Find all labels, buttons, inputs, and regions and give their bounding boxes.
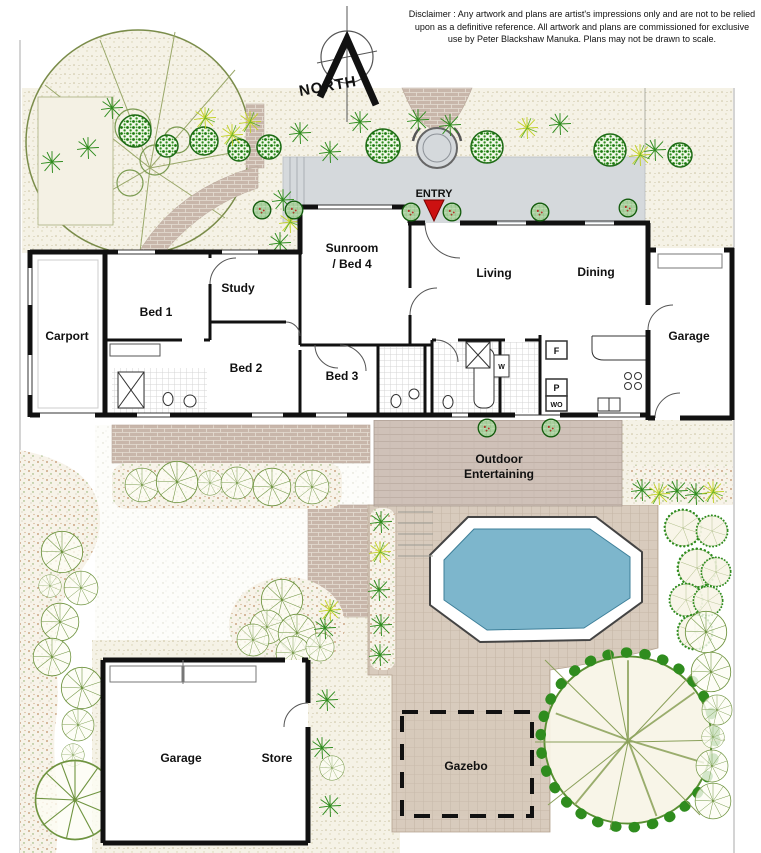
plan-drawing: NORTH: [0, 0, 761, 853]
label-wall-oven: WO: [550, 402, 563, 409]
pool-water: [444, 529, 630, 630]
label-outdoor-1: Outdoor: [475, 452, 523, 466]
room-label-bed1: Bed 1: [140, 305, 173, 319]
garage-door-panel: [184, 666, 256, 682]
disclaimer-text: Disclaimer : Any artwork and plans are a…: [408, 8, 756, 46]
garage-door-panel: [110, 666, 182, 682]
label-pantry: P: [553, 383, 559, 393]
driveway-gravel: [645, 88, 733, 266]
room-label-bed3: Bed 3: [326, 369, 359, 383]
label-outdoor-2: Entertaining: [464, 467, 534, 481]
brick-path-rear: [112, 425, 370, 463]
room-label-sunroom-1: Sunroom: [326, 241, 379, 255]
toilet: [391, 395, 401, 408]
room-label-dining: Dining: [577, 265, 614, 279]
label-gazebo: Gazebo: [444, 759, 487, 773]
basin: [409, 389, 419, 399]
toilet: [163, 393, 173, 406]
room-label-sunroom-2: / Bed 4: [332, 257, 372, 271]
entry-label: ENTRY: [416, 188, 454, 200]
room-label-study: Study: [221, 281, 255, 295]
garden-bed-east: [630, 465, 733, 505]
site-floor-plan: NORTH: [0, 0, 761, 853]
label-washer: W: [498, 364, 505, 371]
room-label-bed2: Bed 2: [230, 361, 263, 375]
basin: [184, 395, 196, 407]
label-fridge: F: [554, 346, 560, 356]
room-label-carport: Carport: [45, 329, 88, 343]
garden-bed-pool-west: [370, 508, 395, 670]
room-label-living: Living: [476, 266, 511, 280]
room-label-garage-lower: Garage: [160, 751, 202, 765]
room-label-store: Store: [262, 751, 293, 765]
room-label-garage-upper: Garage: [668, 329, 710, 343]
toilet: [443, 396, 453, 409]
